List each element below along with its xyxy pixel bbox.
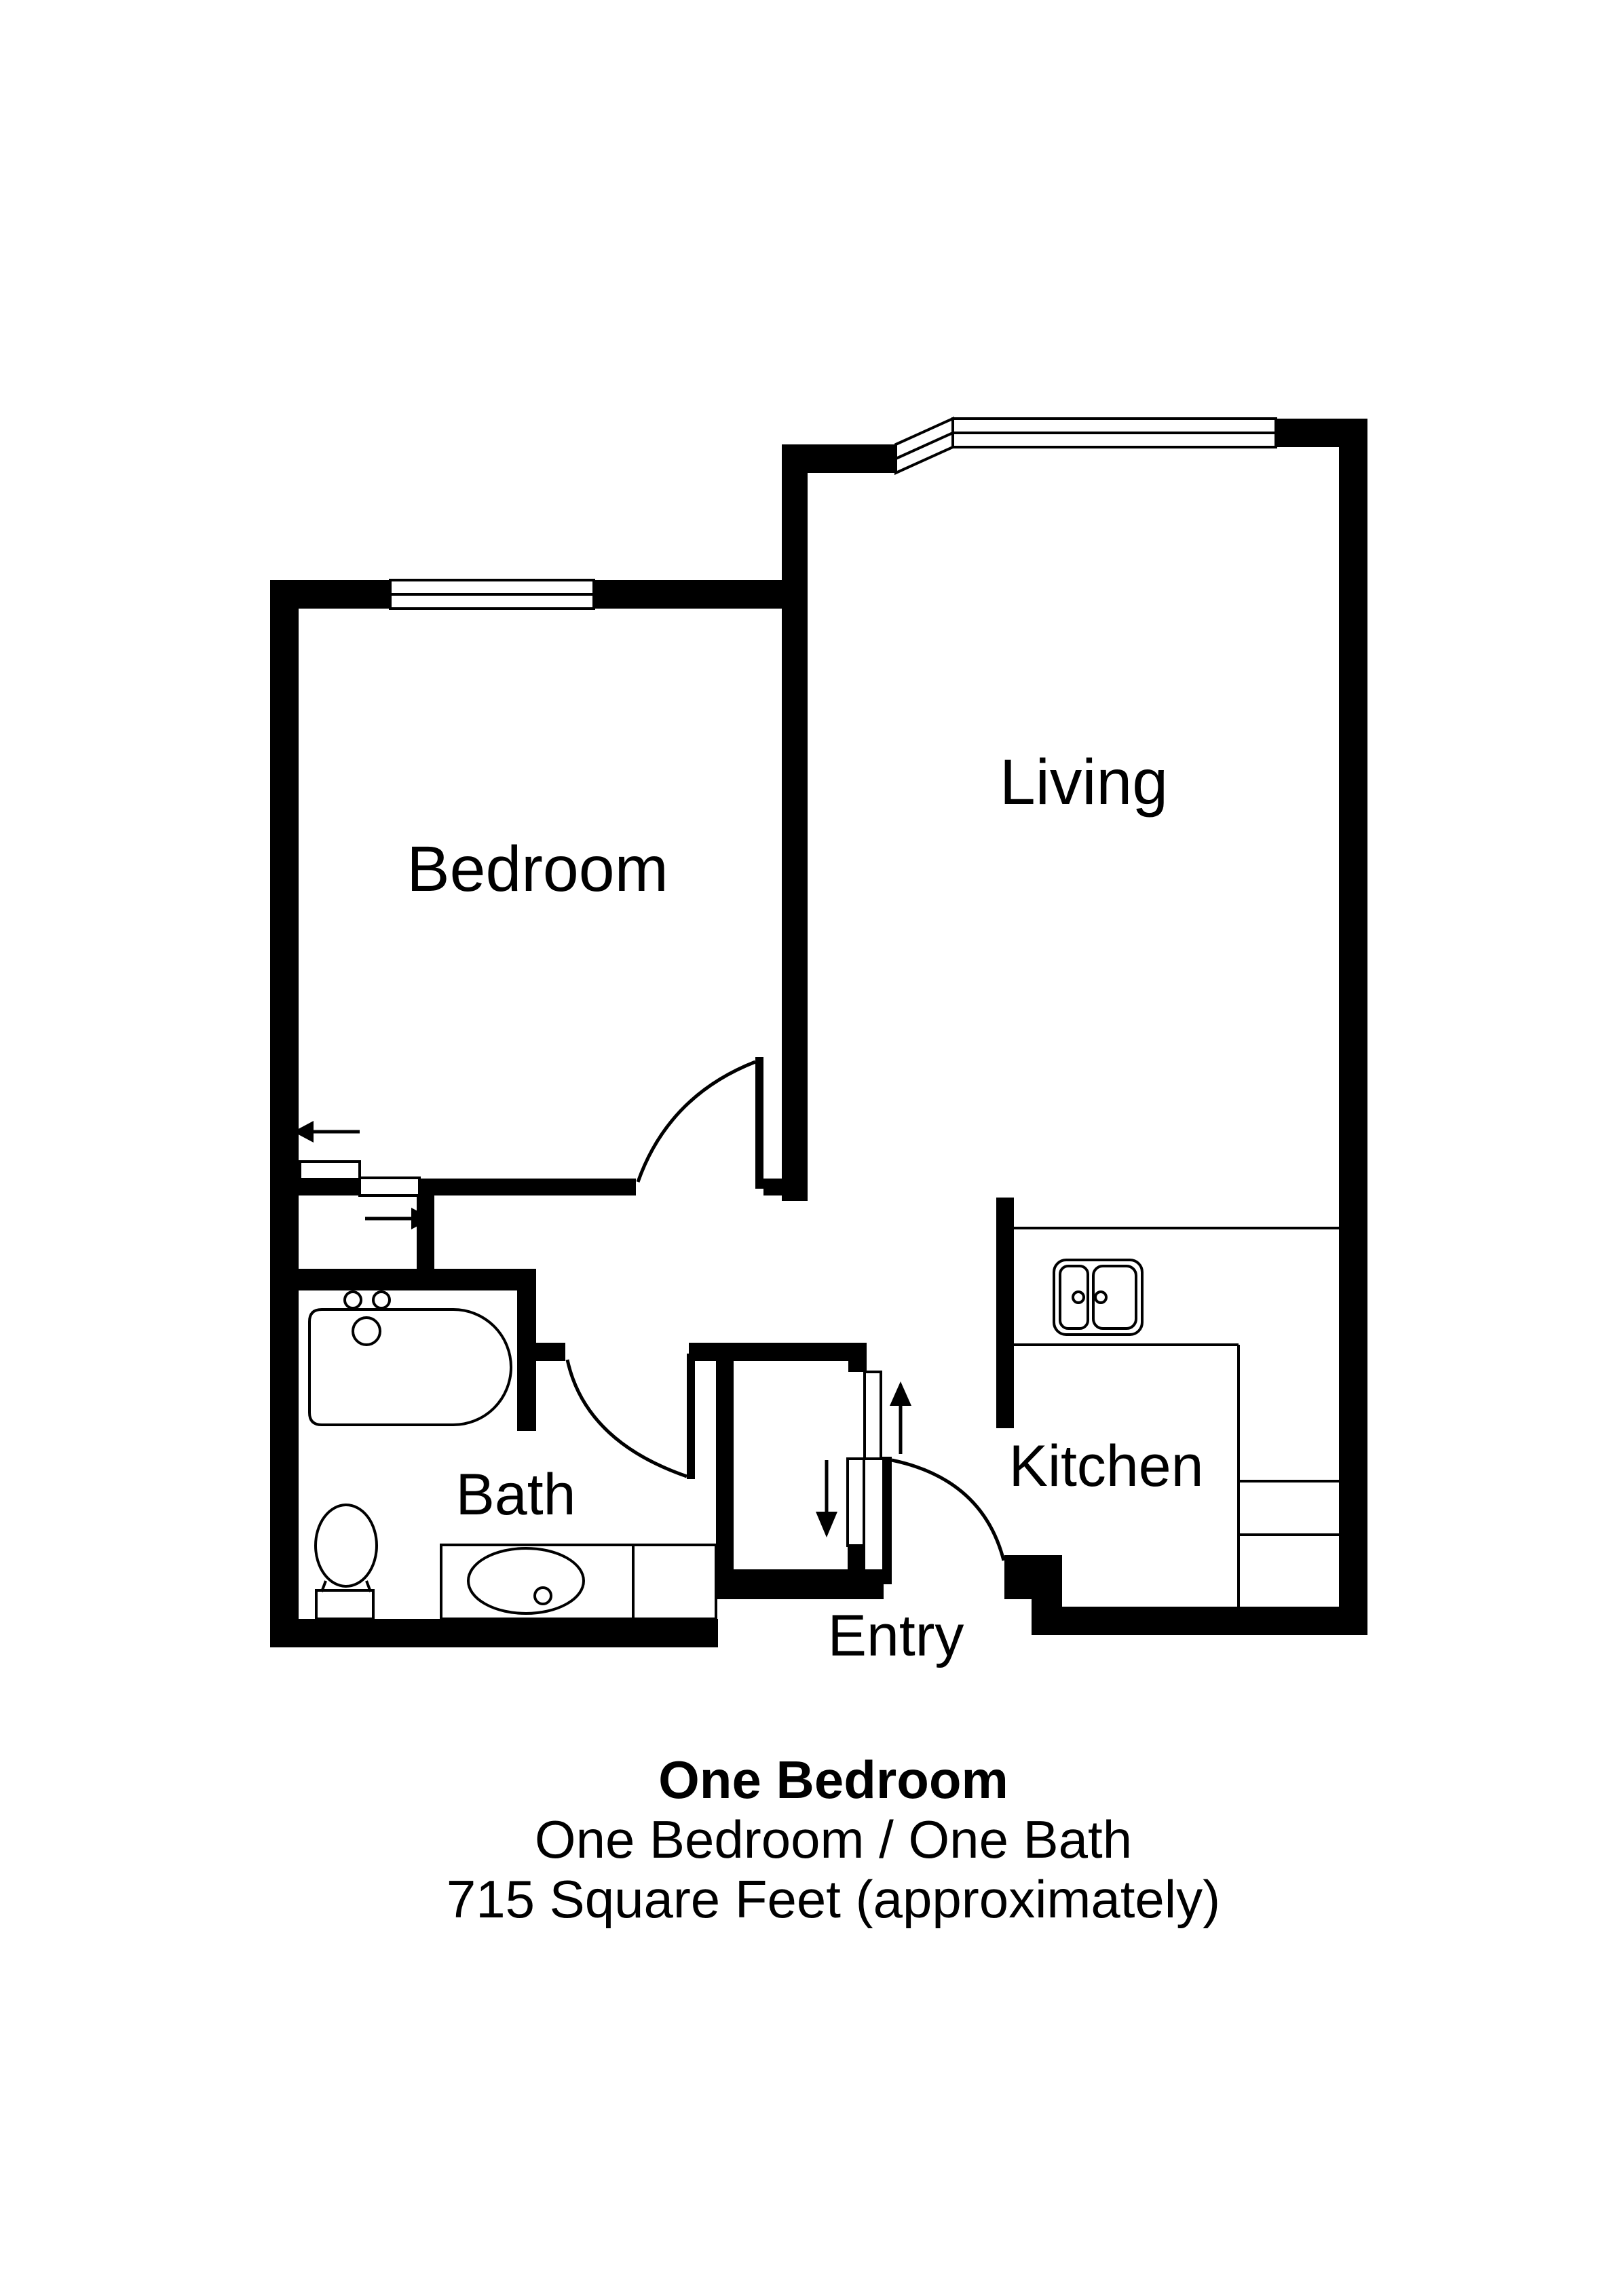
- bedroom-top-wall-left: [270, 580, 390, 609]
- living-bay-diagonal-window: [896, 419, 953, 473]
- kitchen-left-wall: [996, 1198, 1014, 1428]
- exterior-right-wall: [1339, 419, 1367, 1635]
- caption-subtitle: One Bedroom / One Bath: [535, 1810, 1132, 1869]
- caption-area: 715 Square Feet (approximately): [447, 1869, 1220, 1929]
- entry-closet-corner-wall: [848, 1361, 867, 1372]
- entry-bottom-wall: [716, 1569, 884, 1599]
- double-kitchen-sink-icon: [1054, 1260, 1142, 1335]
- bedroom-door-leaf: [755, 1057, 763, 1189]
- slide-up-arrow-head: [890, 1381, 911, 1406]
- entry-door-arc: [892, 1460, 1004, 1561]
- bedroom-door: [638, 1057, 763, 1189]
- kitchen-label: Kitchen: [1009, 1434, 1204, 1499]
- entry-door-leaf: [882, 1457, 892, 1584]
- toilet-icon: [316, 1505, 377, 1619]
- bedroom-closet-bypass-doors: [293, 1121, 432, 1229]
- vanity-sink-icon: [441, 1545, 716, 1619]
- exterior-bottom-wall-right: [1032, 1607, 1339, 1635]
- entry-door-stub-wall: [1004, 1555, 1062, 1599]
- bath-door-arc: [567, 1360, 687, 1476]
- closet-panel-lower: [360, 1178, 419, 1195]
- tub-alcove-top-wall: [270, 1269, 536, 1290]
- living-top-wall-left: [782, 444, 896, 473]
- bedroom-window: [390, 580, 594, 609]
- bedroom-bottom-wall-left: [299, 1179, 636, 1195]
- living-top-window: [953, 419, 1276, 447]
- caption-title: One Bedroom: [658, 1750, 1008, 1810]
- floor-plan-canvas: Bedroom Living Bath Kitchen Entry One Be…: [0, 0, 1624, 2296]
- entry-closet-stub-wall: [848, 1546, 865, 1569]
- hall-bath-wall: [689, 1343, 867, 1361]
- entry-panel-upper: [865, 1372, 881, 1459]
- bath-label: Bath: [456, 1462, 576, 1527]
- bath-door-stub-wall: [536, 1343, 565, 1361]
- bathtub-icon: [309, 1292, 511, 1425]
- entry-door: [882, 1457, 1004, 1584]
- bedroom-label: Bedroom: [407, 833, 668, 905]
- bedroom-top-wall-right: [594, 580, 782, 609]
- bedroom-door-arc: [638, 1062, 755, 1182]
- entry-label: Entry: [828, 1603, 964, 1668]
- entry-closet-left-wall: [716, 1361, 734, 1569]
- entry-closet-bypass-doors: [816, 1372, 911, 1546]
- bath-door: [567, 1354, 695, 1479]
- bedroom-living-divider-wall: [782, 444, 808, 1201]
- bath-door-leaf: [687, 1354, 695, 1479]
- bedroom-bottom-wall-right: [763, 1179, 782, 1195]
- closet-panel-upper: [300, 1162, 360, 1179]
- exterior-bottom-wall-bath: [270, 1619, 718, 1647]
- slide-down-arrow-head: [816, 1512, 837, 1537]
- entry-panel-lower: [848, 1459, 864, 1546]
- bedroom-closet-right-wall: [417, 1195, 434, 1269]
- living-label: Living: [1000, 746, 1168, 818]
- tub-alcove-right-wall: [517, 1269, 536, 1431]
- floor-plan-page: Bedroom Living Bath Kitchen Entry One Be…: [0, 0, 1624, 2296]
- exterior-left-wall: [270, 580, 299, 1647]
